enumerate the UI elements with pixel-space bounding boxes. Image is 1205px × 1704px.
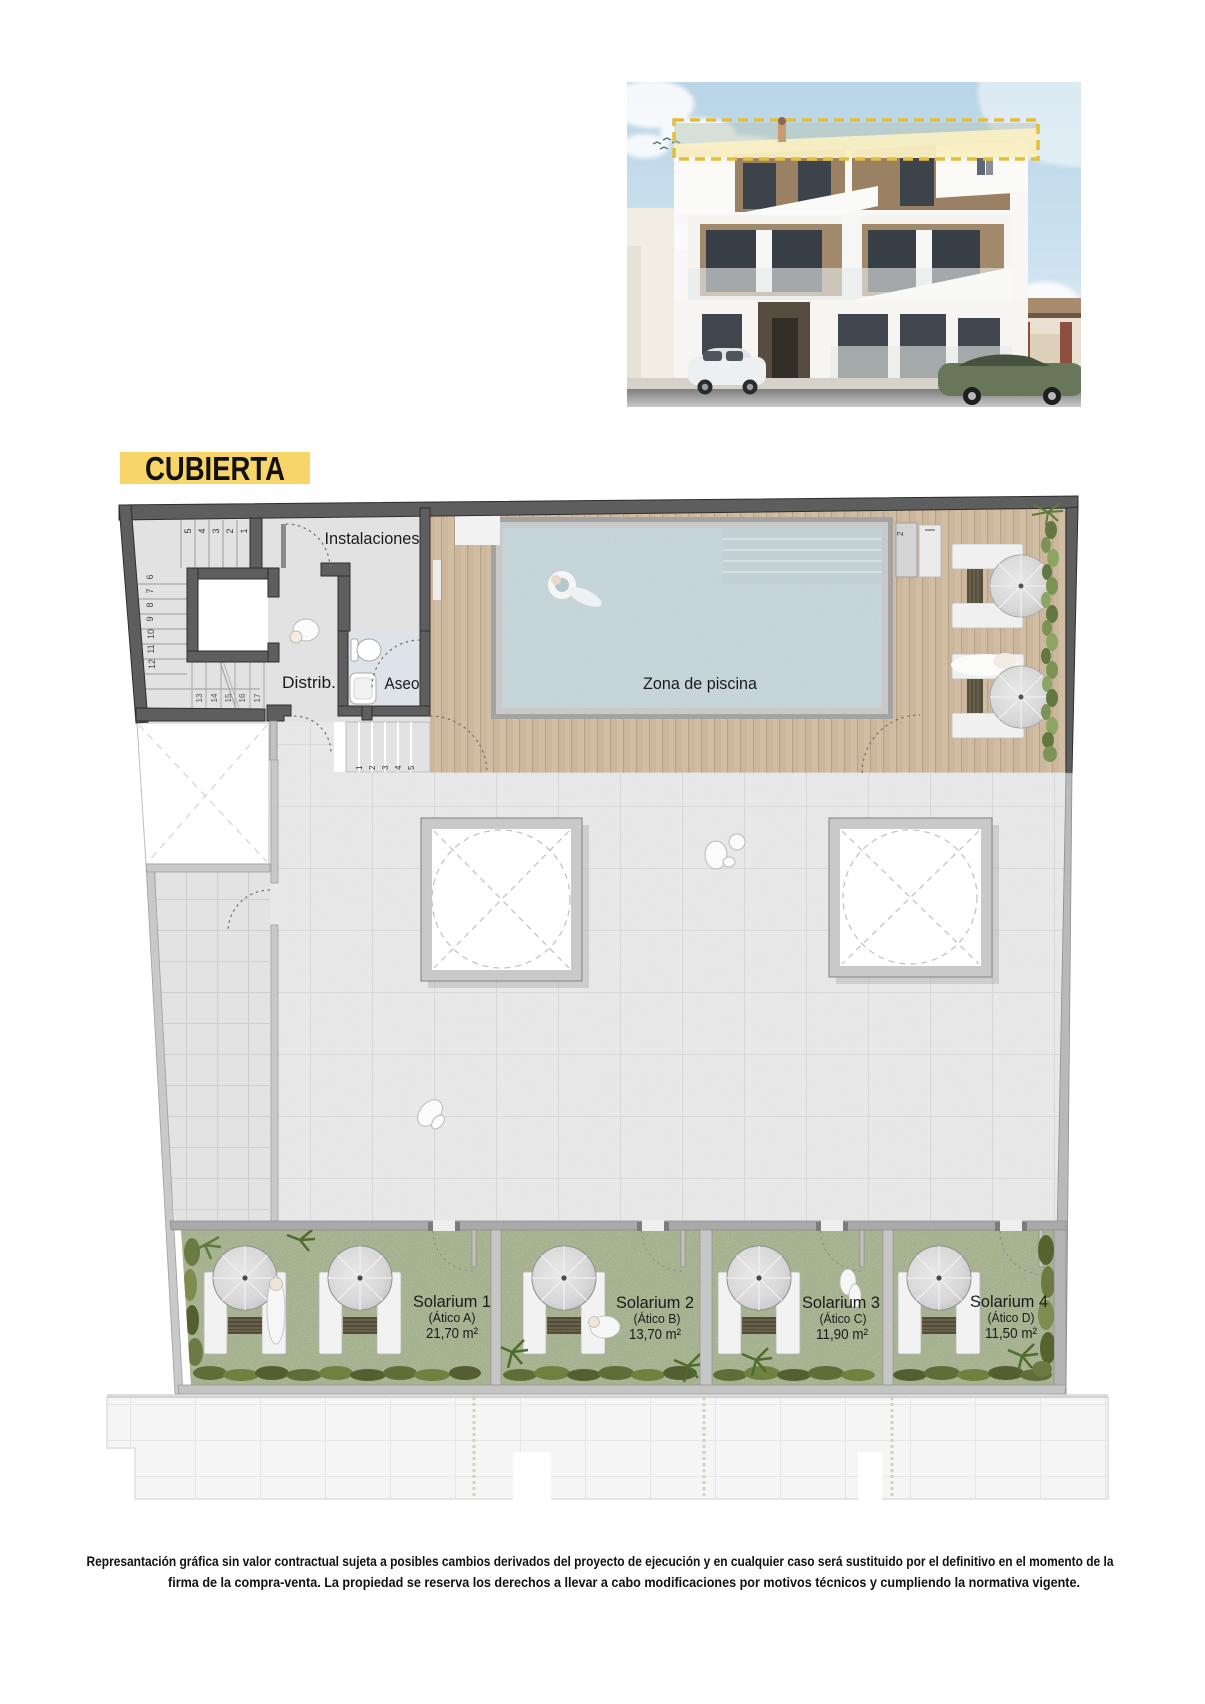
svg-text:1: 1 bbox=[355, 765, 364, 770]
svg-text:Solarium 1: Solarium 1 bbox=[413, 1292, 491, 1311]
svg-text:5: 5 bbox=[183, 528, 193, 533]
svg-text:12: 12 bbox=[147, 659, 157, 669]
svg-text:2: 2 bbox=[368, 765, 377, 770]
svg-text:1: 1 bbox=[239, 528, 249, 533]
svg-text:2: 2 bbox=[225, 528, 235, 533]
svg-text:8: 8 bbox=[145, 602, 155, 607]
svg-text:7: 7 bbox=[145, 588, 155, 593]
svg-text:Instalaciones: Instalaciones bbox=[325, 529, 420, 548]
svg-text:firma de la compra-venta. La p: firma de la compra-venta. La propiedad s… bbox=[168, 1574, 1080, 1590]
svg-text:13,70 m²: 13,70 m² bbox=[629, 1326, 681, 1343]
svg-text:11,90 m²: 11,90 m² bbox=[816, 1326, 868, 1343]
svg-text:5: 5 bbox=[407, 765, 416, 770]
svg-text:16: 16 bbox=[238, 693, 247, 702]
svg-text:9: 9 bbox=[145, 616, 155, 621]
svg-text:11: 11 bbox=[146, 644, 156, 653]
svg-text:13: 13 bbox=[195, 693, 204, 702]
svg-text:CUBIERTA: CUBIERTA bbox=[145, 450, 285, 487]
svg-text:Solarium 3: Solarium 3 bbox=[802, 1293, 880, 1312]
svg-text:Solarium 4: Solarium 4 bbox=[970, 1292, 1048, 1311]
svg-text:3: 3 bbox=[381, 765, 390, 770]
svg-text:Solarium 2: Solarium 2 bbox=[616, 1293, 694, 1312]
svg-text:3: 3 bbox=[211, 528, 221, 533]
svg-text:6: 6 bbox=[145, 574, 155, 579]
svg-text:Distrib.: Distrib. bbox=[282, 673, 336, 692]
svg-text:(Ático D): (Ático D) bbox=[988, 1310, 1035, 1325]
svg-text:(Ático A): (Ático A) bbox=[429, 1310, 476, 1325]
svg-text:(Ático B): (Ático B) bbox=[634, 1311, 681, 1326]
svg-text:10: 10 bbox=[146, 629, 156, 639]
svg-text:Represantación gráfica sin val: Represantación gráfica sin valor contrac… bbox=[87, 1553, 1114, 1569]
svg-text:2: 2 bbox=[896, 531, 905, 536]
svg-text:4: 4 bbox=[197, 528, 207, 533]
svg-text:4: 4 bbox=[394, 765, 403, 770]
svg-text:21,70 m²: 21,70 m² bbox=[426, 1325, 478, 1342]
svg-text:(Ático C): (Ático C) bbox=[820, 1311, 867, 1326]
svg-text:11,50 m²: 11,50 m² bbox=[985, 1325, 1037, 1342]
svg-text:Aseo: Aseo bbox=[385, 674, 420, 693]
svg-text:17: 17 bbox=[253, 693, 262, 702]
svg-text:14: 14 bbox=[210, 693, 219, 702]
svg-text:Zona de piscina: Zona de piscina bbox=[643, 674, 758, 693]
